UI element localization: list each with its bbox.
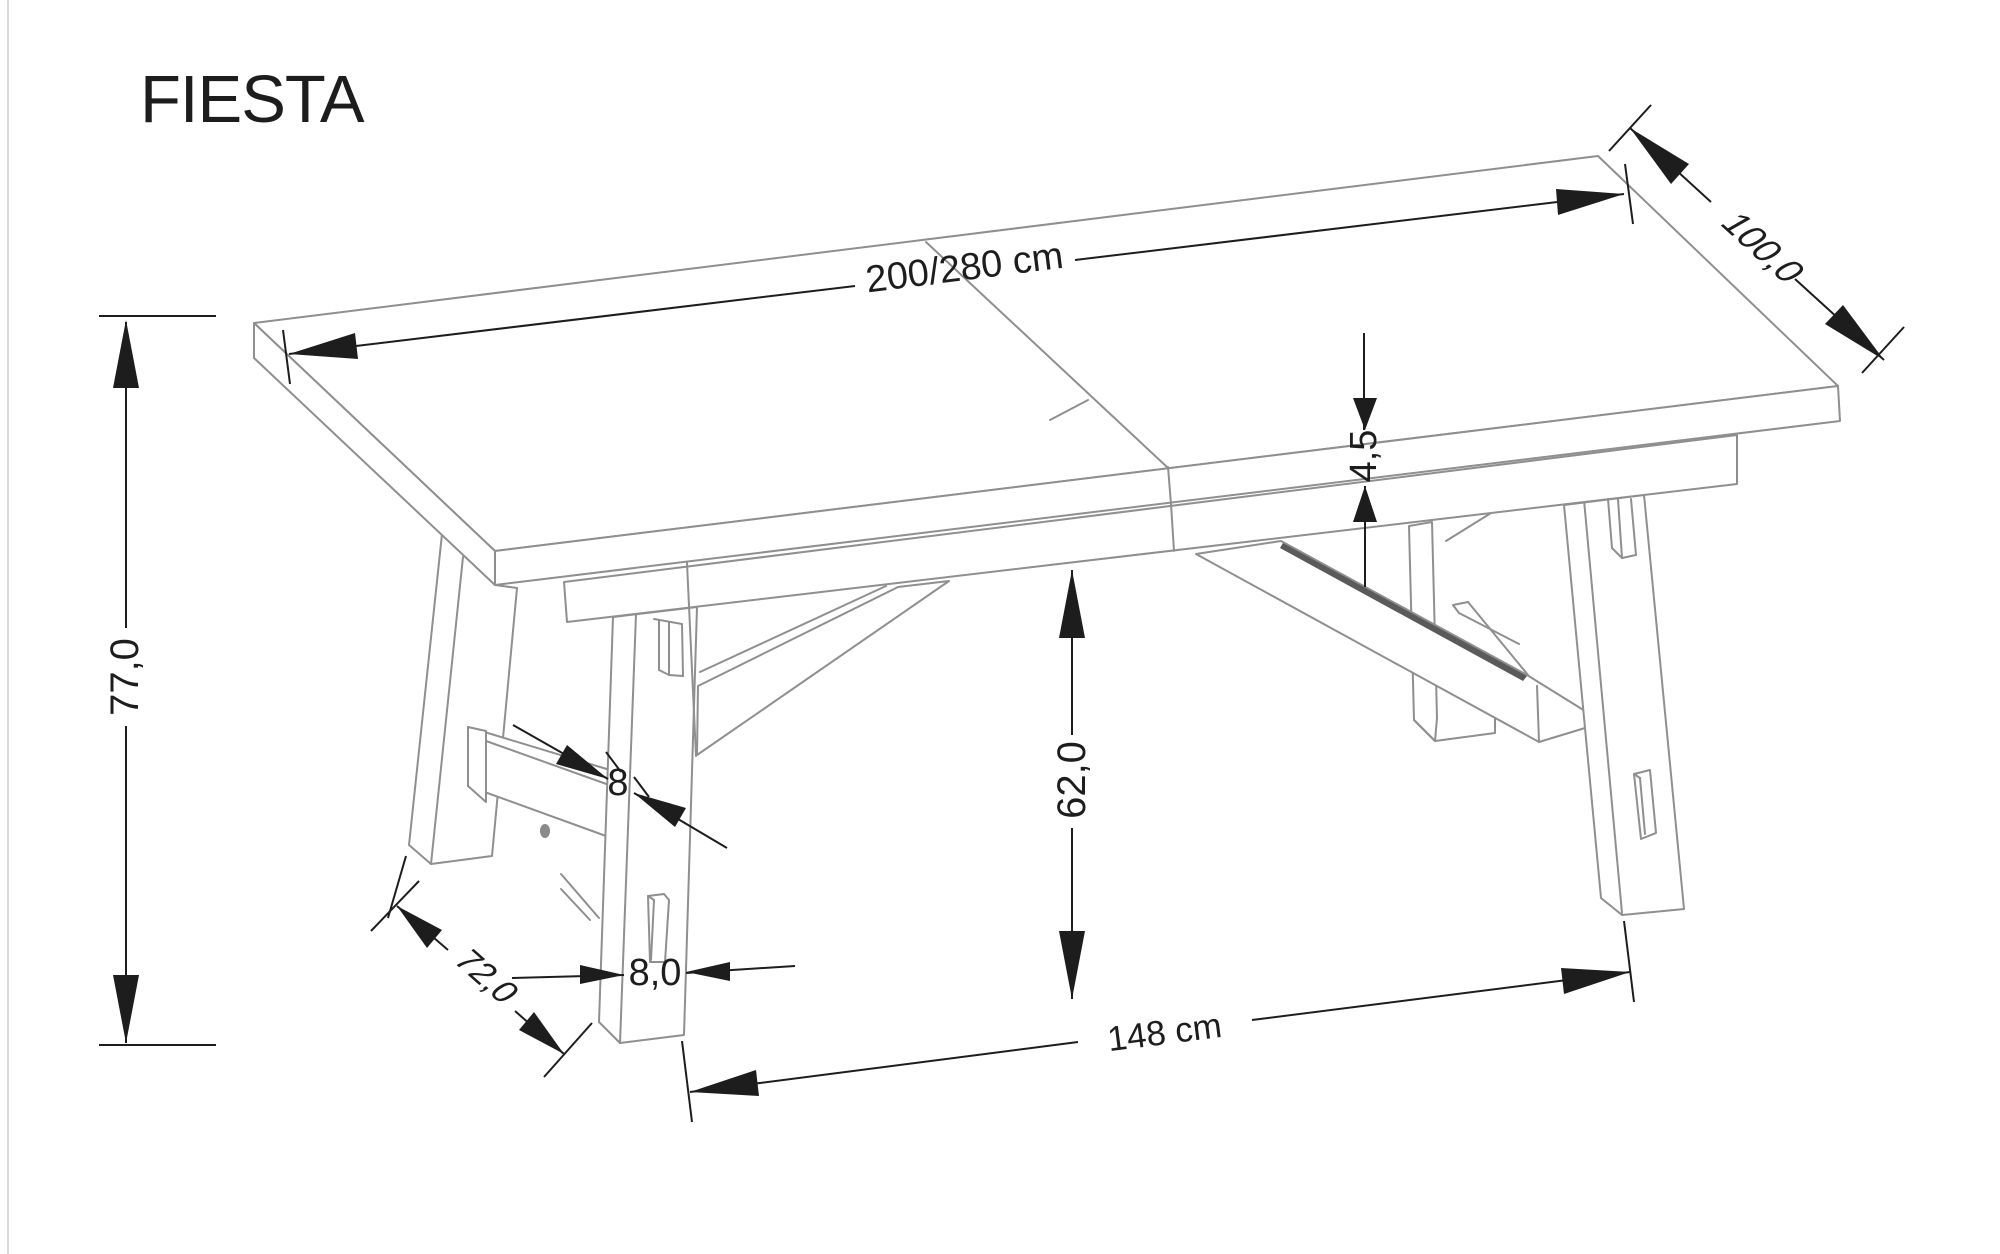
svg-text:62,0: 62,0 — [1050, 741, 1094, 819]
svg-text:8,0: 8,0 — [629, 952, 682, 994]
svg-text:100,0: 100,0 — [1712, 207, 1815, 288]
svg-text:8: 8 — [607, 762, 628, 804]
svg-text:4,5: 4,5 — [1343, 430, 1385, 483]
svg-text:FIESTA: FIESTA — [140, 62, 365, 137]
svg-text:148 cm: 148 cm — [1105, 1006, 1224, 1059]
svg-text:72,0: 72,0 — [445, 944, 527, 1009]
svg-text:77,0: 77,0 — [103, 638, 147, 716]
